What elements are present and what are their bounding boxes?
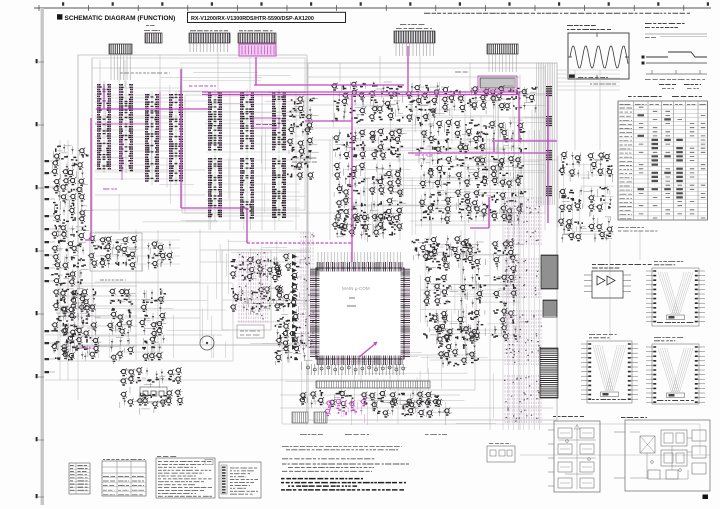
svg-text:MAIN µ-COM: MAIN µ-COM [342,286,370,291]
svg-text:SCHEMATIC DIAGRAM (FUNCTION): SCHEMATIC DIAGRAM (FUNCTION) [65,15,176,22]
svg-text:RX-V1200/RX-V1300RDS/HTR-5590/: RX-V1200/RX-V1300RDS/HTR-5590/DSP-AX1200 [191,16,314,22]
